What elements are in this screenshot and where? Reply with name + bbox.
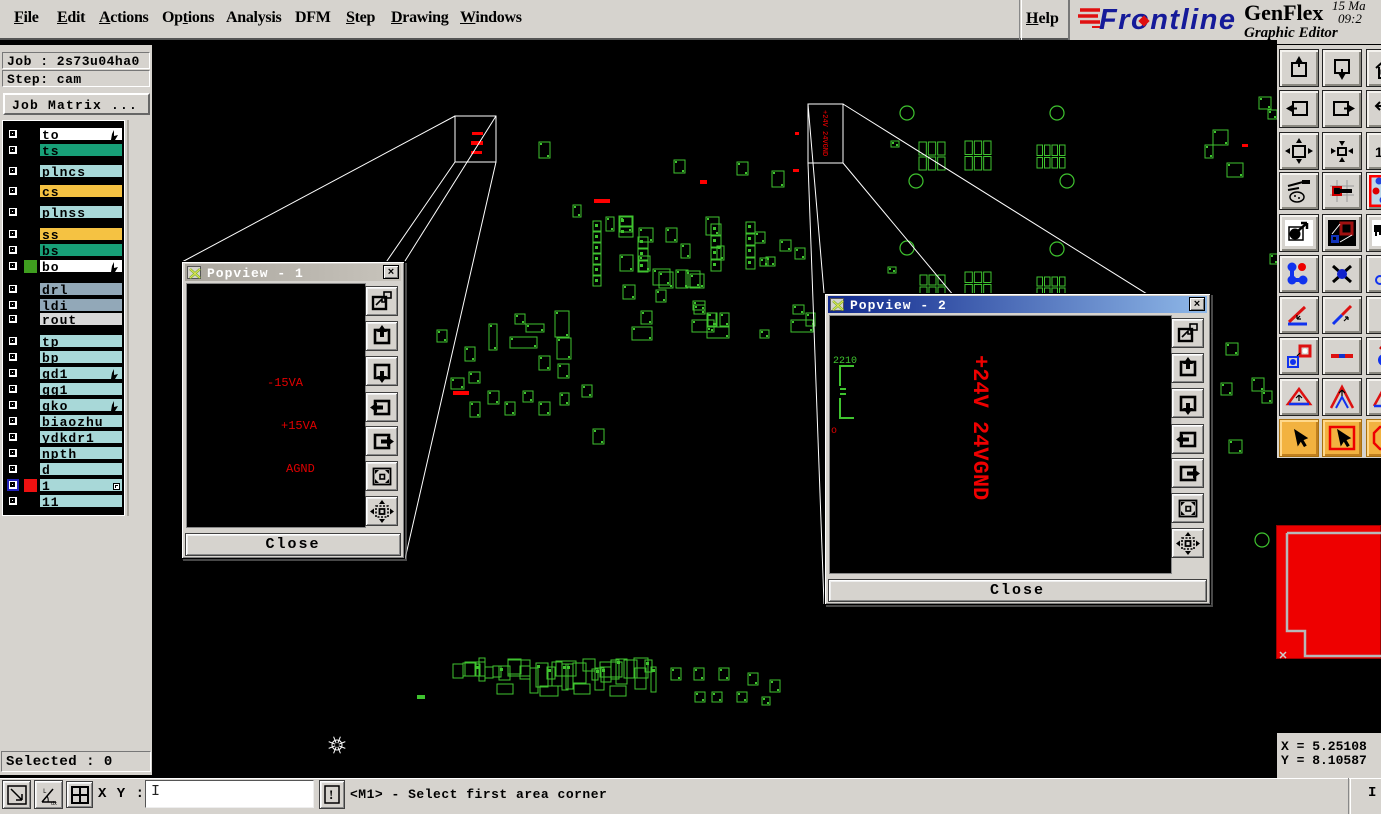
svg-text:L: L [43,788,47,795]
svg-text:dx: dx [51,801,57,806]
svg-text:1:2: 1:2 [1375,144,1381,160]
svg-text:!: ! [329,787,333,802]
svg-text:+24V 24VGND: +24V 24VGND [820,110,828,156]
